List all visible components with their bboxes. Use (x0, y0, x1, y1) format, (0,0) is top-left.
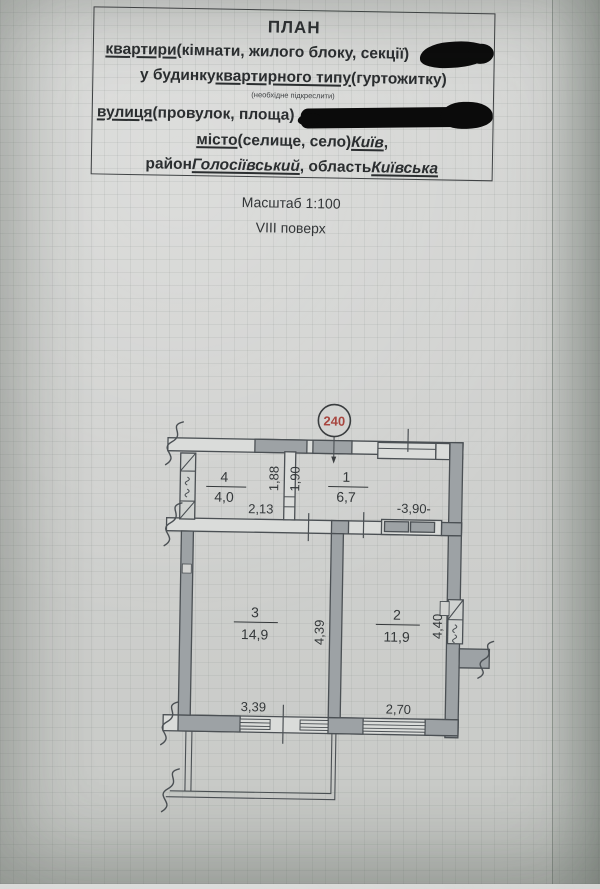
balcony (166, 731, 336, 800)
floor-plan-drawing: 240 4 4,0 1 6,7 3 14,9 2 11,9 (0, 0, 600, 889)
document-sheet: ПЛАН квартири (кімнати, жилого блоку, се… (0, 0, 600, 889)
room-label-4: 4 4,0 (206, 468, 247, 505)
dimension-label: 4,40 (430, 614, 445, 640)
room-label-2: 2 11,9 (375, 606, 420, 645)
dimension-label: 4,39 (311, 620, 326, 646)
partition-room3-room2 (328, 534, 343, 718)
room2-window (363, 721, 425, 732)
svg-text:14,9: 14,9 (241, 626, 269, 642)
svg-text:2: 2 (393, 607, 401, 623)
dimension-label: -3,90- (397, 501, 431, 517)
room-label-1: 1 6,7 (328, 469, 369, 506)
svg-text:4,0: 4,0 (214, 489, 234, 505)
svg-text:3: 3 (251, 604, 259, 620)
dimension-label: 3,39 (241, 699, 267, 714)
dimension-label: 2,70 (386, 702, 412, 717)
walls (160, 422, 498, 818)
svg-text:1: 1 (342, 469, 350, 485)
apartment-number: 240 (323, 413, 345, 428)
balcony-window-left (240, 719, 270, 730)
room-label-3: 3 14,9 (234, 604, 279, 643)
svg-text:4: 4 (220, 469, 228, 485)
right-wall (445, 443, 463, 738)
dimension-label: 2,13 (248, 501, 274, 516)
left-wall (178, 531, 193, 715)
room-labels: 4 4,0 1 6,7 3 14,9 2 11,9 (204, 466, 423, 645)
vent-shaft-icon (180, 453, 196, 519)
apartment-number-badge: 240 (318, 404, 351, 437)
balcony-window-right (300, 720, 328, 730)
dimension-label: 1,90 (287, 466, 302, 492)
svg-text:11,9: 11,9 (383, 628, 410, 644)
svg-text:6,7: 6,7 (336, 489, 356, 505)
dimension-label: 1,88 (266, 466, 281, 492)
window-niche-top (378, 442, 436, 459)
